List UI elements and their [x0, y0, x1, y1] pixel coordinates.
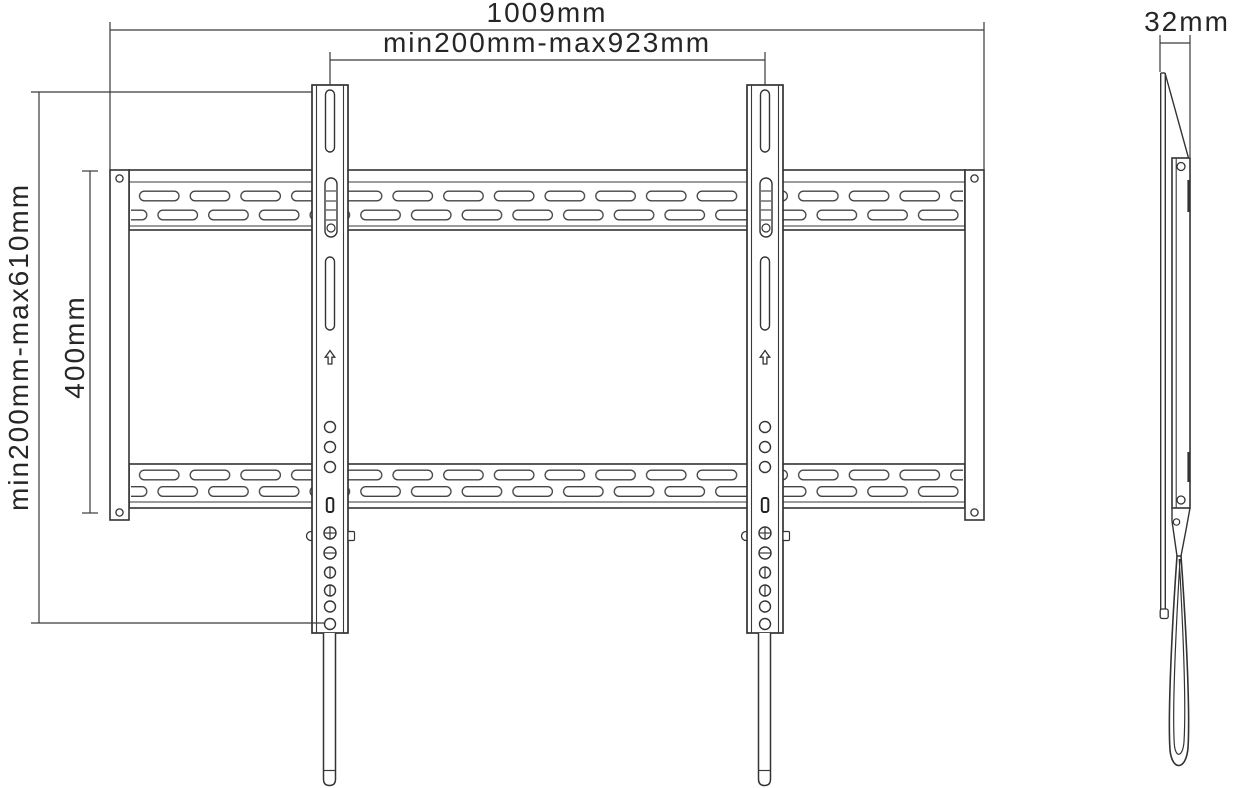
mount-hole — [1177, 163, 1185, 171]
top-hook-mark — [1187, 180, 1190, 212]
right-vesa-bracket — [742, 85, 790, 786]
depth-label: 32mm — [1144, 6, 1230, 37]
wall-mount-drawing: 1009mm min200mm-max923mm min200mm-max610… — [0, 0, 1235, 788]
front-view — [110, 85, 984, 786]
side-wall-plate — [1172, 158, 1190, 508]
dim-depth — [1160, 35, 1190, 157]
bottom-hook-mark — [1187, 452, 1190, 482]
mount-hole — [1177, 496, 1185, 504]
vesa-height-range-label: min200mm-max610mm — [3, 183, 34, 511]
overall-width-label: 1009mm — [487, 0, 608, 28]
dimension-labels: 1009mm min200mm-max923mm min200mm-max610… — [3, 0, 1230, 511]
bottom-rail — [129, 464, 965, 508]
drawing-canvas: 1009mm min200mm-max923mm min200mm-max610… — [0, 0, 1235, 788]
mount-hole — [116, 175, 123, 182]
top-rail — [129, 170, 965, 230]
plate-height-label: 400mm — [59, 295, 90, 398]
left-end-plate — [110, 170, 129, 520]
top-rail-slot-row-1 — [131, 191, 963, 202]
bottom-rail-slot-row-1 — [131, 470, 963, 481]
right-end-plate — [965, 170, 984, 520]
bottom-rail-slot-row-2 — [131, 486, 963, 497]
top-hook-slant — [1165, 74, 1188, 158]
mount-hole — [971, 175, 978, 182]
mount-hole — [116, 509, 123, 516]
left-vesa-bracket — [307, 85, 355, 786]
top-rail-slot-row-2 — [131, 210, 963, 221]
side-view — [1160, 73, 1190, 766]
dimension-lines — [31, 22, 1190, 623]
vesa-width-range-label: min200mm-max923mm — [383, 27, 711, 58]
side-pull-loop — [1169, 508, 1190, 766]
mount-hole — [971, 509, 978, 516]
